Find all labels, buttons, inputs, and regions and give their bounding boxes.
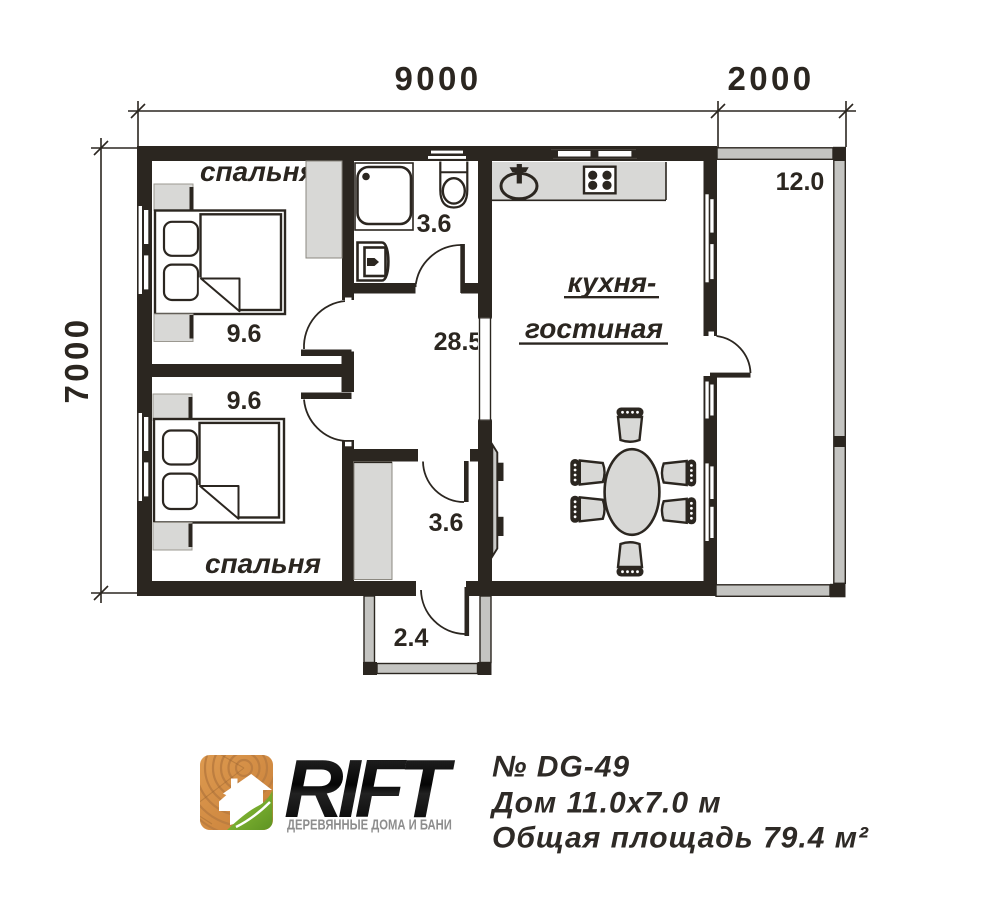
svg-text:7000: 7000	[58, 316, 95, 403]
svg-text:ДЕРЕВЯННЫЕ ДОМА И БАНИ: ДЕРЕВЯННЫЕ ДОМА И БАНИ	[287, 816, 452, 833]
svg-text:9.6: 9.6	[227, 387, 262, 415]
svg-text:№ DG-49: № DG-49	[492, 751, 630, 784]
svg-text:Дом 11.0х7.0 м: Дом 11.0х7.0 м	[489, 787, 722, 820]
svg-text:28.5: 28.5	[434, 328, 483, 356]
svg-text:9000: 9000	[394, 60, 481, 97]
svg-text:гостиная: гостиная	[525, 313, 663, 344]
svg-text:Общая площадь 79.4 м²: Общая площадь 79.4 м²	[492, 822, 869, 855]
svg-text:2.4: 2.4	[394, 624, 429, 652]
svg-text:3.6: 3.6	[429, 509, 464, 537]
svg-text:9.6: 9.6	[227, 320, 262, 348]
svg-text:12.0: 12.0	[776, 168, 825, 196]
svg-text:2000: 2000	[727, 60, 814, 97]
svg-text:спальня: спальня	[205, 548, 321, 579]
svg-text:спальня: спальня	[200, 156, 316, 187]
svg-text:кухня-: кухня-	[568, 267, 657, 298]
svg-text:3.6: 3.6	[417, 210, 452, 238]
